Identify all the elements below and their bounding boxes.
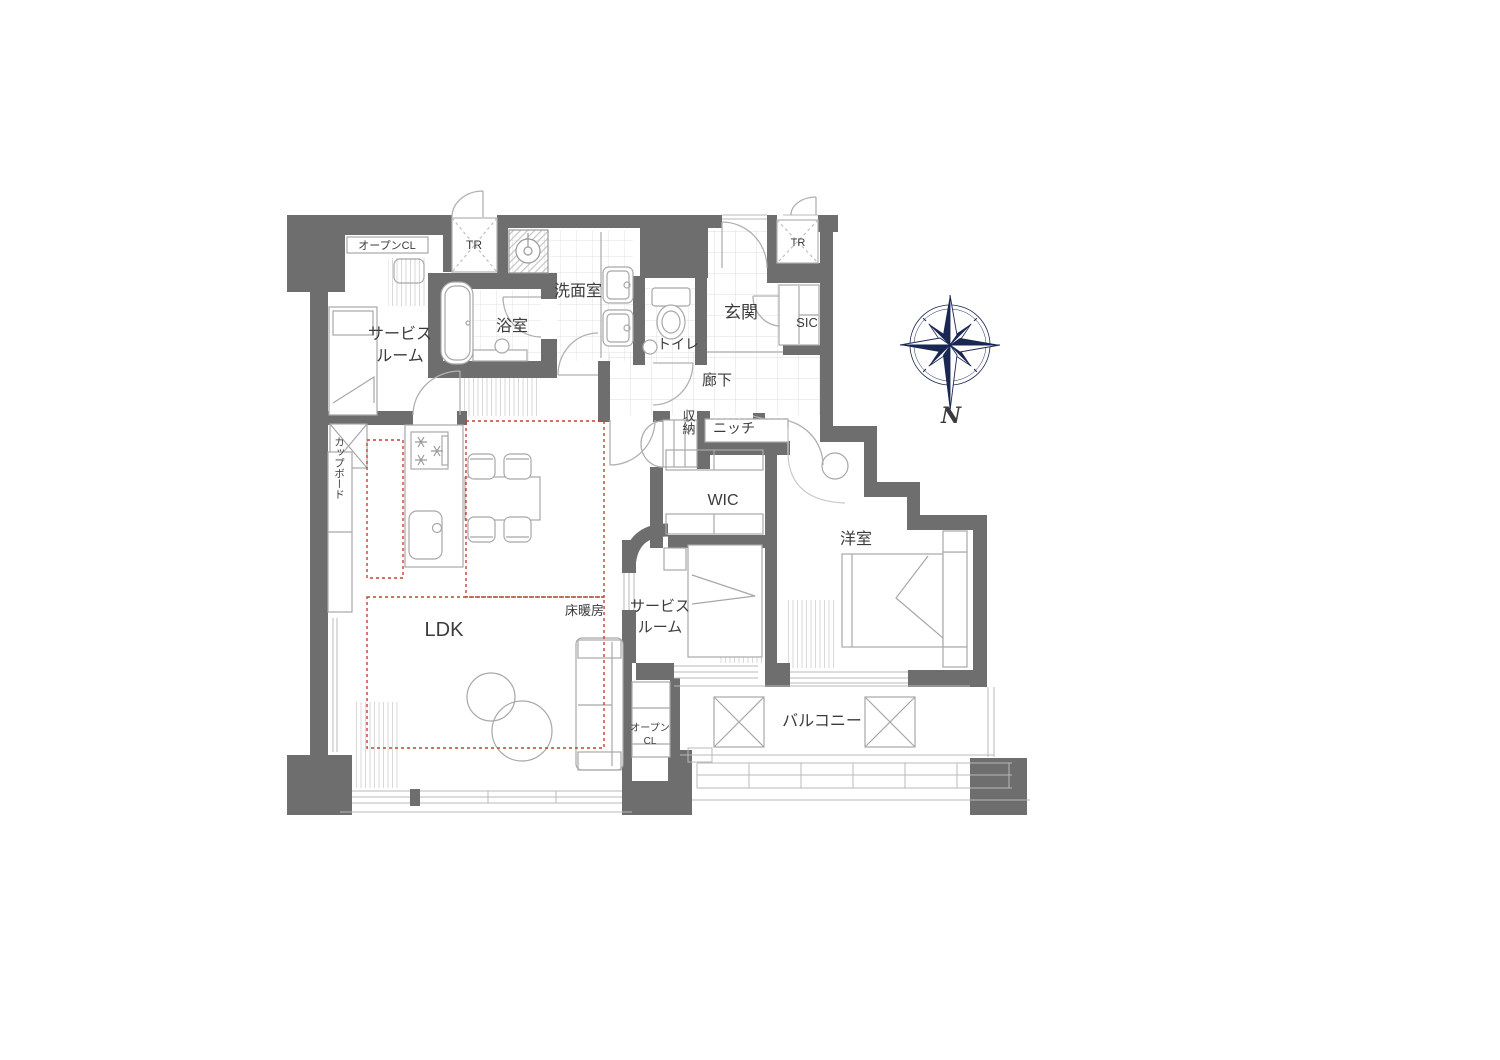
service-room-1-label-line1: サービス [368,325,432,343]
single-bed-icon [329,307,377,415]
balcony-label: バルコニー [782,713,862,730]
compass-north-label: N [940,403,962,429]
cupboard-label: カップボード [333,437,345,500]
wic-label: WIC [707,492,738,509]
sofa-icon [576,638,623,770]
double-bed-icon [842,531,967,667]
kitchen-sink-icon [409,511,442,559]
trunk-room-1-door [452,191,483,217]
storage-label: 収納 [681,409,696,436]
trunk-room-1-label: TR [466,238,482,252]
western-room-label: 洋室 [840,530,872,548]
service-room-2-label-line1: サービス [630,598,690,615]
washroom-label: 洗面室 [554,282,602,300]
floor-plan-drawing: N オープンCL TR TR 洗面室 浴室 サービス ルーム トイレ 玄関 SI… [0,0,1500,1060]
trunk-room-2-label: TR [791,237,806,249]
floor-heating-label: 床暖房 [565,603,604,618]
storage-double-doors [641,421,663,467]
hallway-label: 廊下 [702,372,732,389]
open-closet-2-label-line2: CL [644,736,657,747]
entrance-label: 玄関 [724,303,758,322]
floor-plan-page: N オープンCL TR TR 洗面室 浴室 サービス ルーム トイレ 玄関 SI… [0,0,1500,1060]
toilet-label: トイレ [657,336,699,352]
curved-wall [629,530,668,571]
dining-set-icon [465,454,540,542]
ldk-label: LDK [425,619,465,641]
rug-circle [467,673,515,721]
rug-circle [492,701,552,761]
kitchen-counter [405,425,463,567]
bathroom-label: 浴室 [496,317,528,335]
service-room-1-label-line2: ルーム [376,348,424,365]
washing-machine-icon [509,230,548,273]
sic-label: SIC [796,315,818,330]
compass-rose-icon: N [900,295,1000,429]
trunk-room-2-door [791,197,816,215]
niche-label: ニッチ [713,420,755,436]
service-room-2-label-line2: ルーム [638,619,683,636]
open-closet-1-label: オープンCL [358,239,415,252]
open-closet-2-label-line1: オープン [630,722,669,734]
burners-icon [415,437,443,465]
stool-icon [822,453,848,479]
